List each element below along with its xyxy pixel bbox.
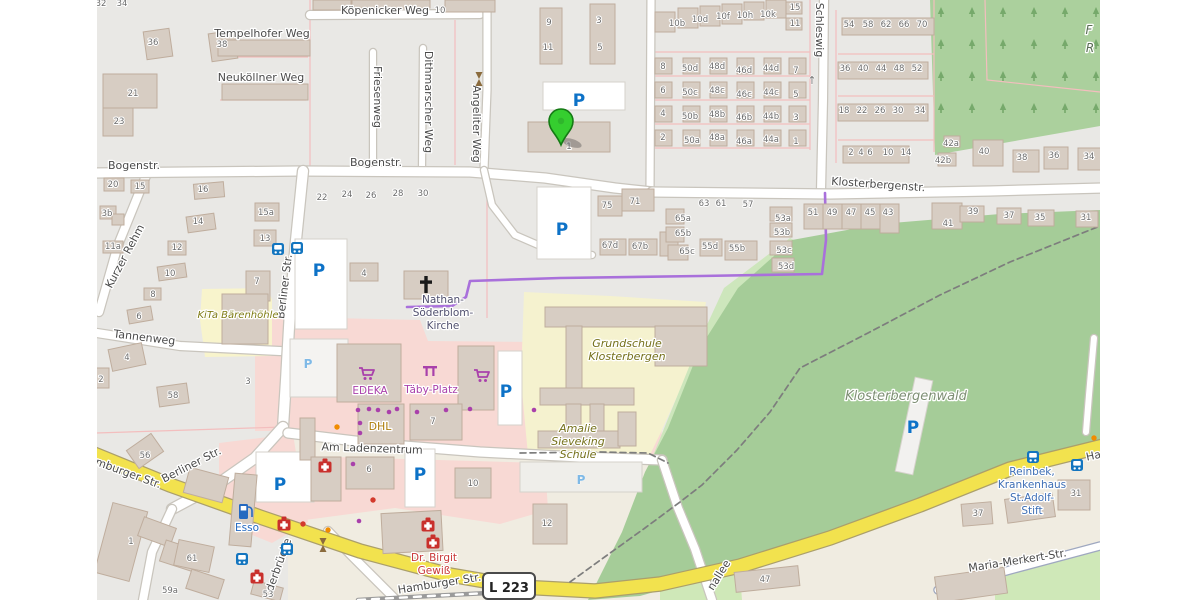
tree-trunk [971, 78, 973, 81]
poi-label: St.Adolf- [1010, 492, 1054, 504]
house-number: 36 [1049, 151, 1060, 161]
house-number: 16 [198, 185, 209, 195]
poi-label: Täby-Platz [403, 384, 458, 396]
tree-trunk [971, 46, 973, 49]
parking-icon: P [274, 475, 286, 495]
house-number: 75 [602, 201, 613, 211]
house-number: 40 [858, 64, 869, 74]
house-number: 28 [393, 189, 404, 199]
street-label: Angeliter Weg [470, 85, 483, 162]
house-number: 6 [867, 148, 872, 158]
house-number: 34 [1084, 152, 1095, 162]
house-number: 40 [979, 147, 990, 157]
bus-stop-icon [272, 243, 284, 255]
bus-window [293, 244, 301, 249]
house-number: 2 [848, 148, 853, 158]
house-number: 38 [217, 40, 228, 50]
house-number: 4 [361, 269, 366, 279]
house-number: 4 [858, 148, 863, 158]
tree-trunk [940, 14, 942, 17]
house-number: 34 [915, 106, 926, 116]
house-number: 46d [736, 66, 752, 76]
house-number: 15 [790, 3, 801, 13]
tree-trunk [1064, 110, 1066, 113]
bus-wheel [1078, 467, 1080, 469]
house-number: 67b [632, 242, 648, 252]
bus-stop-icon [281, 543, 293, 555]
tree-trunk [940, 46, 942, 49]
poi-label: Klosterbergenwald [845, 389, 968, 404]
street-label: Dithmarscher Weg [422, 51, 435, 153]
house-number: 36 [840, 64, 851, 74]
cart-wheel [369, 377, 372, 380]
bus-window [1029, 453, 1037, 458]
medical-cross-h [429, 541, 437, 544]
poi-label: Stift [1021, 505, 1042, 517]
bus-window [238, 555, 246, 560]
building [445, 0, 495, 12]
house-number: 65c [679, 247, 695, 257]
house-number: 7 [254, 277, 259, 287]
house-number: 12 [542, 519, 553, 529]
cart-wheel [364, 377, 367, 380]
house-number: 55d [702, 242, 718, 252]
street-label: R [1086, 41, 1094, 55]
parking-small-icon: P [577, 473, 586, 487]
house-number: 67d [602, 241, 618, 251]
house-number: 9 [546, 18, 551, 28]
house-number: 61 [716, 199, 727, 209]
tree-trunk [940, 78, 942, 81]
house-number: 3b [102, 209, 113, 219]
tree-trunk [1064, 14, 1066, 17]
house-number: 52 [912, 64, 923, 74]
house-number: 1 [128, 537, 133, 547]
house-number: 11 [543, 43, 554, 53]
house-number: 31 [1071, 489, 1082, 499]
poi-label: Klosterbergen [588, 350, 665, 363]
medical-cross-h [424, 524, 432, 527]
house-number: 49 [827, 208, 838, 218]
building [112, 214, 124, 225]
bus-stop-icon [236, 553, 248, 565]
house-number: 39 [968, 207, 979, 217]
tile-gap-right [1100, 0, 1200, 600]
house-number: 48 [894, 64, 905, 74]
house-number: 13 [260, 234, 271, 244]
parking-icon: P [500, 382, 512, 402]
building [590, 4, 615, 64]
house-number: 7 [793, 66, 798, 76]
street-label: Neuköllner Weg [218, 71, 305, 84]
map-viewport[interactable]: Köpenicker WegTempelhofer WegNeuköllner … [0, 0, 1200, 600]
house-number: 48c [709, 86, 725, 96]
house-number: 3 [596, 16, 601, 26]
house-number: 45 [865, 208, 876, 218]
house-number: 10 [468, 479, 479, 489]
house-number: 46b [736, 113, 752, 123]
cart-wheel [484, 379, 487, 382]
house-number: 53d [778, 262, 794, 272]
house-number: 21 [128, 89, 139, 99]
house-number: 46a [736, 137, 752, 147]
house-number: 56 [140, 451, 151, 461]
house-number: 5 [597, 43, 602, 53]
cross-h [420, 280, 432, 283]
house-number: 71 [630, 197, 641, 207]
house-number: 58 [168, 391, 179, 401]
poi-label: Söderblom- [413, 307, 474, 319]
bus-wheel [288, 551, 290, 553]
house-number: 8 [150, 290, 155, 300]
house-number: 6 [660, 86, 665, 96]
house-number: 59a [162, 586, 178, 596]
house-number: 38 [1017, 153, 1028, 163]
house-number: 41 [943, 219, 954, 229]
house-number: 57 [743, 200, 754, 210]
bus-wheel [284, 551, 286, 553]
parking-icon: P [907, 418, 919, 438]
cart-wheel [479, 379, 482, 382]
bus-stop-icon [291, 242, 303, 254]
house-number: 44c [763, 88, 779, 98]
house-number: 66 [899, 20, 910, 30]
tree-trunk [1095, 14, 1097, 17]
service-road-center [650, 0, 651, 190]
bus-window [1073, 461, 1081, 466]
poi-label: Dr. Birgit [411, 552, 457, 564]
house-number: 70 [917, 20, 928, 30]
poi-label: Schule [560, 448, 597, 461]
house-number: 8 [660, 62, 665, 72]
building [218, 40, 310, 56]
house-number: 31 [1081, 213, 1092, 223]
house-number: 20 [108, 180, 119, 190]
tree-trunk [1002, 110, 1004, 113]
house-number: 53b [774, 228, 790, 238]
house-number: 36 [148, 38, 159, 48]
house-number: 65b [675, 229, 691, 239]
poi-label: Sieveking [551, 435, 604, 448]
building [540, 8, 562, 64]
house-number: 42b [935, 156, 951, 166]
house-number: 30 [893, 106, 904, 116]
table-top [423, 366, 437, 368]
poi-label: Nathan- [422, 294, 464, 306]
parking-small-icon: P [304, 357, 313, 371]
house-number: 2 [660, 133, 665, 143]
bus-stop-icon [1027, 451, 1039, 463]
tree-trunk [1002, 14, 1004, 17]
house-number: 53c [776, 246, 792, 256]
house-number: 47 [846, 208, 857, 218]
poi-dot-orange-icon [1091, 435, 1096, 440]
poi-label: Grundschule [592, 337, 662, 350]
tree-trunk [1095, 110, 1097, 113]
house-number: 22 [857, 106, 868, 116]
pump-window [241, 506, 247, 511]
house-number: 35 [1035, 213, 1046, 223]
poi-dot-icon [444, 408, 449, 413]
poi-label: Esso [235, 522, 259, 534]
bus-window [283, 545, 291, 550]
house-number: 26 [875, 106, 886, 116]
street-label: Tempelhofer Weg [213, 27, 309, 40]
house-number: 37 [1004, 211, 1015, 221]
house-number: 3 [245, 377, 250, 387]
house-number: 15 [135, 182, 146, 192]
bus-wheel [239, 561, 241, 563]
poi-dot-icon [358, 431, 363, 436]
bus-wheel [1034, 459, 1036, 461]
house-number: 50b [682, 112, 698, 122]
house-number: 51 [808, 208, 819, 218]
street-label: Schleswig [813, 3, 826, 58]
house-number: 54 [844, 20, 855, 30]
house-number: 10k [760, 10, 776, 20]
parking-lot [295, 239, 347, 329]
house-number: 26 [366, 191, 377, 201]
house-number: 5 [793, 90, 798, 100]
building [458, 346, 494, 410]
house-number: 10 [435, 6, 446, 16]
poi-label: DHL [369, 420, 393, 433]
poi-dot-icon [356, 408, 361, 413]
bus-wheel [1074, 467, 1076, 469]
tree-trunk [1033, 78, 1035, 81]
poi-dot-icon [358, 421, 363, 426]
map-canvas[interactable]: Köpenicker WegTempelhofer WegNeuköllner … [0, 0, 1200, 600]
tile-gap-left [0, 0, 97, 600]
bus-window [274, 245, 282, 250]
house-number: 58 [863, 20, 874, 30]
house-number: 10f [716, 12, 731, 22]
house-number: 1 [793, 137, 798, 147]
house-number: 3 [793, 113, 798, 123]
house-number: 65a [675, 214, 691, 224]
house-number: 55b [729, 244, 745, 254]
table-leg [432, 368, 434, 376]
poi-dot-red-icon [300, 521, 305, 526]
house-number: 48d [709, 62, 725, 72]
poi-dot-icon [415, 410, 420, 415]
street-label: Friesenweg [371, 66, 384, 128]
house-number: 18 [839, 106, 850, 116]
house-number: 10b [669, 19, 685, 29]
street-label: F [1086, 23, 1094, 37]
house-number: 63 [699, 199, 710, 209]
tree-trunk [1033, 14, 1035, 17]
house-number: 23 [114, 117, 125, 127]
house-number: 44b [763, 112, 779, 122]
house-number: 4 [660, 109, 665, 119]
poi-label: Kirche [427, 320, 460, 332]
bus-wheel [1030, 459, 1032, 461]
poi-dot-icon [532, 408, 537, 413]
poi-dot-icon [376, 408, 381, 413]
house-number: 50c [682, 88, 698, 98]
house-number: 14 [901, 148, 912, 158]
house-number: 46c [736, 90, 752, 100]
tree-trunk [1095, 78, 1097, 81]
house-number: 6 [366, 465, 371, 475]
poi-label: Amalie [558, 422, 597, 435]
angeliter-weg-road [484, 0, 487, 170]
house-number: 2 [98, 375, 103, 385]
house-number: 11 [790, 19, 801, 29]
building [566, 326, 582, 392]
parking-icon: P [556, 220, 568, 240]
house-number: 50d [682, 64, 698, 74]
house-number: 22 [317, 193, 328, 203]
bus-wheel [275, 251, 277, 253]
poi-label: Reinbek, [1009, 466, 1054, 478]
house-number: 42a [943, 139, 959, 149]
poi-dot-orange-icon [325, 527, 330, 532]
tree-trunk [940, 110, 942, 113]
building [618, 412, 636, 446]
house-number: 7 [430, 417, 435, 427]
house-number: 10h [737, 11, 753, 21]
tree-trunk [1095, 46, 1097, 49]
house-number: 48b [709, 110, 725, 120]
building [300, 418, 315, 460]
tree-trunk [1064, 78, 1066, 81]
house-number: 44d [763, 64, 779, 74]
bus-wheel [243, 561, 245, 563]
bus-wheel [279, 251, 281, 253]
cross-v [424, 276, 427, 293]
oneway-arrow-icon: ↑ [807, 74, 816, 87]
tree-trunk [971, 14, 973, 17]
poi-dot-orange-icon [334, 424, 339, 429]
house-number: 14 [193, 217, 204, 227]
house-number: 10 [165, 269, 176, 279]
house-number: 47 [760, 575, 771, 585]
poi-dot-red-icon [370, 497, 375, 502]
house-number: 44a [763, 135, 779, 145]
bus-wheel [294, 250, 296, 252]
house-number: 15a [258, 208, 274, 218]
house-number: 30 [418, 189, 429, 199]
tree-trunk [1033, 46, 1035, 49]
tree-trunk [1033, 110, 1035, 113]
medical-cross-h [253, 576, 261, 579]
house-number: 48a [709, 133, 725, 143]
tree-trunk [1002, 78, 1004, 81]
parking-icon: P [573, 91, 585, 111]
house-number: 10 [883, 148, 894, 158]
house-number: 10d [692, 15, 708, 25]
poi-dot-icon [357, 519, 362, 524]
poi-label: Gewiß [418, 565, 451, 577]
house-number: 4 [124, 353, 129, 363]
house-number: 12 [172, 243, 183, 253]
poi-dot-icon [351, 462, 356, 467]
street-label: Bogenstr. [108, 159, 160, 172]
route-badge-text: L 223 [489, 581, 529, 596]
house-number: 62 [881, 20, 892, 30]
medical-cross-h [280, 523, 288, 526]
street-label: Bogenstr. [350, 156, 402, 169]
house-number: 43 [883, 208, 894, 218]
house-number: 11a [105, 242, 121, 252]
marker-pin-hole [558, 118, 564, 124]
house-number: 50a [684, 136, 700, 146]
building [222, 84, 308, 100]
bus-stop-icon [1071, 459, 1083, 471]
tree-trunk [1002, 46, 1004, 49]
house-number: 34 [117, 0, 128, 9]
building [410, 404, 462, 440]
poi-dot-icon [468, 407, 473, 412]
poi-dot-icon [367, 407, 372, 412]
poi-dot-icon [395, 407, 400, 412]
house-number: 37 [973, 509, 984, 519]
tree-trunk [1064, 46, 1066, 49]
medical-cross-h [321, 465, 329, 468]
building [545, 307, 707, 327]
house-number: 6 [136, 312, 141, 322]
house-number: 32 [96, 0, 107, 9]
house-number: 61 [187, 554, 198, 564]
poi-label: EDEKA [352, 385, 388, 397]
parking-icon: P [313, 261, 325, 281]
street-label: Köpenicker Weg [341, 4, 429, 17]
poi-label: KiTa Bärenhöhle [197, 310, 278, 321]
house-number: 24 [342, 190, 353, 200]
house-number: 44 [876, 64, 887, 74]
house-number: 53 [263, 590, 274, 600]
tree-trunk [971, 110, 973, 113]
parking-icon: P [414, 465, 426, 485]
route-badge: L 223 [483, 573, 535, 599]
bus-wheel [298, 250, 300, 252]
table-leg [426, 368, 428, 376]
poi-label: Krankenhaus [998, 479, 1066, 491]
building [540, 388, 634, 405]
poi-dot-icon [387, 410, 392, 415]
house-number: 53a [775, 214, 791, 224]
